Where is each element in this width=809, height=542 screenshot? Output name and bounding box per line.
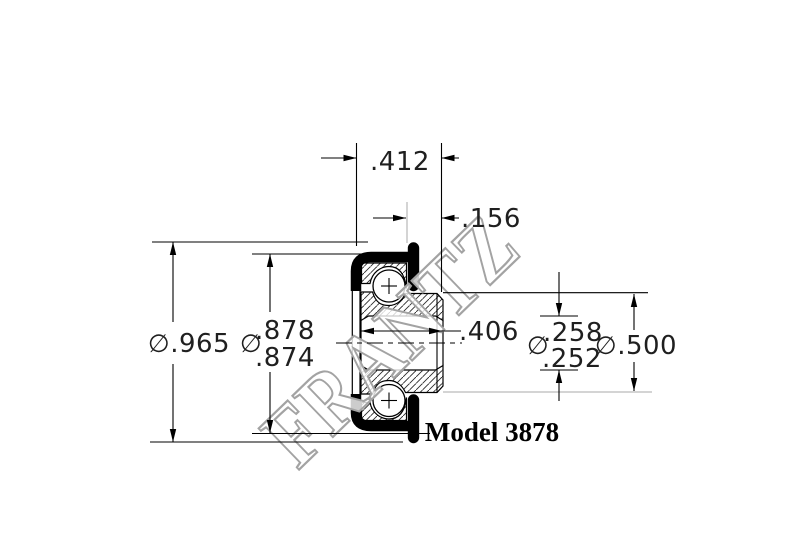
dim-flange-offset-label: .156 (461, 204, 521, 234)
bearing-cross-section-drawing: FRANTZ (0, 0, 809, 542)
dim-flange-diameter-label: ∅.965 (148, 329, 230, 359)
dim-bore-diameter-min-label: .252 (542, 344, 602, 374)
dim-overall-width-label: .412 (370, 147, 430, 177)
dim-housing-diameter-min-label: .874 (255, 343, 315, 373)
dim-housing-diameter-max-label: .878 (255, 316, 315, 346)
dim-inner-ring-width-label: .406 (459, 317, 519, 347)
dim-extension-diameter-label: ∅.500 (595, 331, 677, 361)
model-label: Model 3878 (425, 417, 559, 447)
bearing-drawing-canvas: FRANTZ (0, 0, 809, 542)
diameter-symbol-extension: ∅ (595, 331, 617, 360)
diameter-symbol: ∅ (148, 329, 170, 358)
